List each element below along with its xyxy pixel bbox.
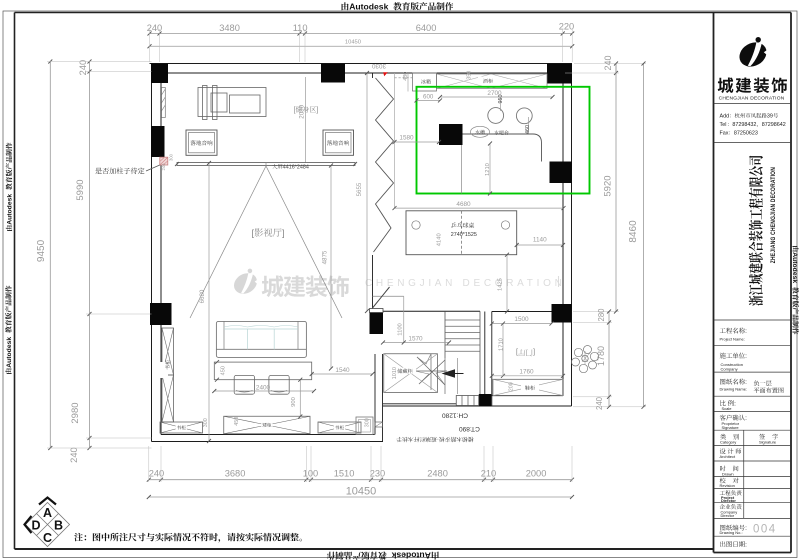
svg-text:·: · [437, 435, 439, 441]
svg-text:Autodesk: Autodesk [791, 252, 798, 283]
svg-text:210: 210 [481, 469, 497, 479]
svg-text:2000: 2000 [526, 469, 547, 479]
svg-text:Company: Company [721, 367, 738, 372]
svg-text:240: 240 [69, 447, 79, 463]
svg-text:4680: 4680 [456, 201, 471, 208]
svg-text:3680: 3680 [225, 469, 246, 479]
svg-text:4416*2484: 4416*2484 [283, 165, 309, 171]
svg-text:3030: 3030 [371, 62, 386, 69]
svg-text:1540: 1540 [335, 367, 350, 374]
svg-text:3480: 3480 [219, 23, 240, 33]
svg-text:A: A [43, 506, 52, 520]
svg-text:Signature: Signature [722, 425, 740, 430]
svg-text:2080: 2080 [299, 104, 306, 118]
svg-text:Drawing No.:: Drawing No.: [720, 530, 743, 535]
svg-text:Architect: Architect [720, 454, 736, 459]
svg-text:2740*1525: 2740*1525 [451, 232, 477, 238]
svg-text:240: 240 [595, 396, 604, 410]
svg-text:Revision: Revision [720, 483, 735, 488]
svg-text:6680: 6680 [199, 289, 206, 303]
svg-text:460: 460 [525, 125, 531, 134]
svg-text:1780: 1780 [596, 346, 606, 366]
svg-text:ZHEJIANG CHENGJIAN DECORATION: ZHEJIANG CHENGJIAN DECORATION [770, 167, 777, 263]
svg-text:004: 004 [753, 524, 777, 536]
svg-text:240: 240 [147, 23, 163, 33]
svg-text:5655: 5655 [356, 182, 363, 196]
svg-text:240: 240 [603, 55, 613, 70]
svg-text:Add: Add [720, 114, 730, 120]
svg-text:9450: 9450 [36, 239, 47, 262]
svg-text:300: 300 [169, 153, 174, 161]
svg-text::: : [745, 542, 747, 549]
svg-text:Director: Director [721, 513, 735, 518]
svg-text:Autodesk: Autodesk [391, 550, 430, 560]
svg-text:Drawn: Drawn [722, 472, 734, 477]
svg-text:2400: 2400 [256, 385, 271, 392]
svg-text:1210: 1210 [485, 163, 491, 176]
svg-text:600: 600 [423, 94, 434, 101]
svg-text:6400: 6400 [416, 23, 437, 33]
svg-text:Tel: Tel [720, 122, 727, 128]
svg-text:200: 200 [509, 382, 515, 391]
svg-text:10450: 10450 [346, 486, 377, 498]
svg-text:]: ] [516, 348, 518, 357]
svg-text:1425: 1425 [498, 278, 504, 291]
svg-text:240: 240 [149, 469, 165, 479]
svg-text:39: 39 [767, 114, 773, 120]
svg-text:100: 100 [303, 469, 319, 479]
svg-text:900: 900 [291, 397, 297, 407]
svg-text:Category: Category [720, 440, 736, 445]
svg-text:5990: 5990 [75, 179, 86, 200]
svg-text:]: ] [316, 107, 318, 114]
svg-text:CHENGJIAN DECORATION: CHENGJIAN DECORATION [365, 278, 566, 289]
svg-text:10450: 10450 [345, 40, 361, 46]
svg-text:110: 110 [293, 23, 308, 33]
svg-text:2980: 2980 [70, 402, 81, 423]
svg-text:B: B [54, 519, 63, 533]
svg-text:87250623: 87250623 [734, 131, 758, 137]
svg-text::: : [745, 415, 747, 422]
svg-text:4140: 4140 [437, 233, 443, 246]
svg-text:CH:1280: CH:1280 [442, 412, 468, 419]
svg-text:1510: 1510 [334, 469, 355, 479]
svg-text::: : [745, 328, 747, 335]
svg-text:1500: 1500 [514, 316, 529, 323]
svg-text:1710: 1710 [499, 338, 505, 351]
svg-text:950: 950 [498, 95, 504, 104]
svg-text:Signature: Signature [759, 440, 777, 445]
svg-text:4875: 4875 [322, 250, 329, 264]
svg-text:230: 230 [370, 469, 386, 479]
svg-text:D: D [32, 519, 41, 533]
svg-text:1580: 1580 [399, 135, 414, 142]
svg-text:Fax: Fax [720, 131, 729, 137]
svg-text:1100: 1100 [398, 323, 404, 335]
svg-text:1570: 1570 [408, 335, 423, 342]
svg-text:1140: 1140 [533, 237, 547, 244]
svg-text:240: 240 [161, 163, 166, 171]
svg-text:Drawing Name:: Drawing Name: [720, 387, 748, 392]
svg-text::: : [745, 353, 747, 360]
svg-text:CHENGJIAN DECORATION: CHENGJIAN DECORATION [719, 96, 785, 102]
svg-text::: : [745, 379, 747, 386]
svg-text:[: [ [294, 107, 296, 114]
svg-text:Autodesk: Autodesk [7, 194, 14, 225]
svg-text:CT:890: CT:890 [459, 425, 480, 432]
svg-text:C: C [43, 531, 52, 545]
svg-text:Autodesk: Autodesk [349, 2, 388, 12]
svg-text:450: 450 [234, 417, 240, 426]
svg-text:280: 280 [597, 308, 606, 322]
svg-text:87298642: 87298642 [762, 122, 786, 128]
svg-text:Scale: Scale [722, 406, 733, 411]
svg-text:Director: Director [721, 498, 736, 503]
svg-text:8460: 8460 [628, 220, 639, 243]
svg-text:2480: 2480 [427, 469, 448, 479]
svg-text:1010: 1010 [392, 367, 398, 379]
svg-text:Autodesk: Autodesk [6, 337, 13, 368]
svg-text:[: [ [252, 228, 255, 238]
svg-text:450: 450 [221, 366, 227, 375]
svg-text:]: ] [282, 228, 285, 238]
svg-text:350: 350 [467, 71, 473, 80]
svg-text::: : [734, 401, 736, 408]
svg-text:1760: 1760 [519, 369, 534, 376]
svg-text:240: 240 [78, 60, 88, 76]
svg-text:220: 220 [559, 22, 575, 32]
svg-text::: : [745, 525, 747, 532]
svg-text:5920: 5920 [603, 175, 614, 196]
svg-text:87298432: 87298432 [732, 122, 756, 128]
svg-text:Project Name:: Project Name: [720, 337, 745, 342]
svg-text:300: 300 [203, 418, 209, 427]
